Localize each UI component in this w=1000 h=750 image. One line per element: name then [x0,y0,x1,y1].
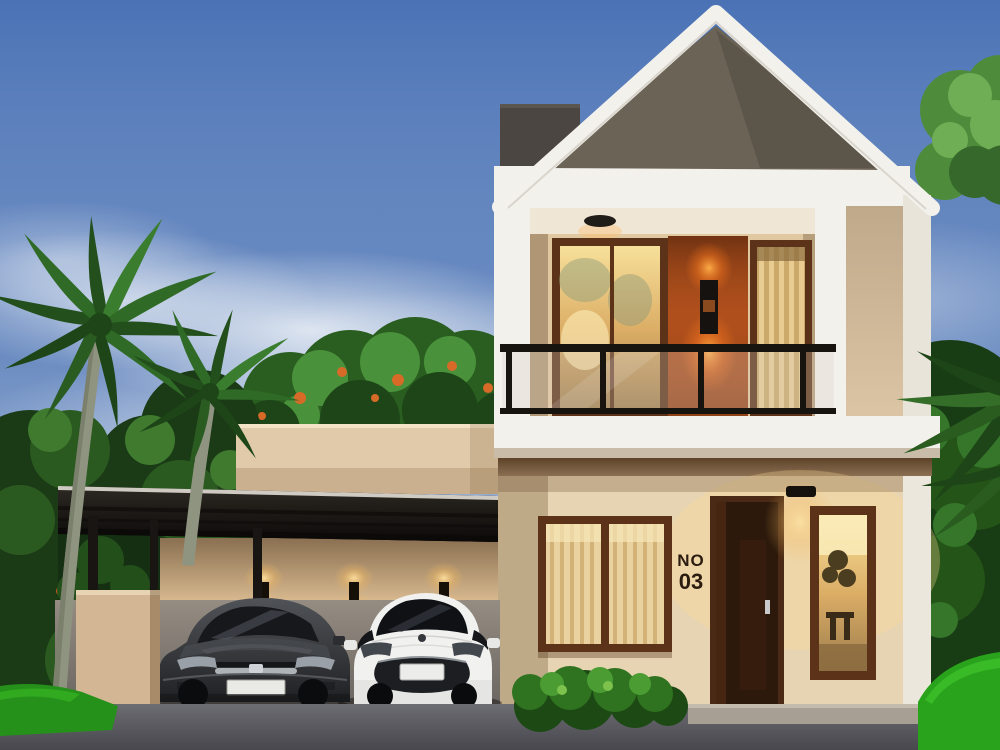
house-number-line2: 03 [679,569,703,594]
balcony-frame-top [498,166,910,208]
interior-table-silhouette [826,612,854,618]
white-car-mirror [344,640,357,650]
scene-canvas: NO 03 [0,0,1000,750]
entry-step-edge [688,704,928,708]
sedan-mirror [333,636,345,645]
door-handle [765,600,770,614]
boundary-wall [76,590,160,708]
single-storey-parapet [236,424,498,494]
corner-pilaster [903,476,931,712]
flat-roof-box-edge [500,104,580,108]
railing-glass [502,352,834,414]
white-car-mirror [487,638,500,648]
tall-window [810,506,876,680]
wall-lamp-window [703,300,715,312]
front-double-window [538,516,672,658]
sedan-license-plate [227,680,285,695]
entry-downlight [786,486,816,497]
sedan-badge [249,664,263,673]
white-car-badge [418,634,426,642]
floor-slab-underside [494,448,940,458]
upper-side-wall-shade [846,206,904,418]
house-number-sign: NO 03 [677,551,705,594]
white-car-license-plate [400,664,444,680]
house-number-line1: NO [677,551,705,570]
ceiling-lamp [584,215,616,227]
upper-corner-pilaster [903,195,931,418]
balcony-railing [500,344,836,414]
slab-shadow-band [498,458,932,476]
house-exterior-render: NO 03 [0,0,1000,750]
